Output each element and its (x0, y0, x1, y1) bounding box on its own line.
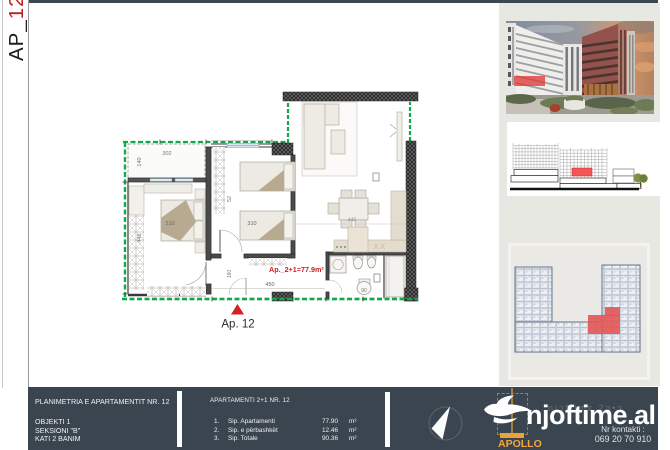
svg-text:310: 310 (247, 221, 256, 227)
svg-text:Ap._2+1=77.9m²: Ap._2+1=77.9m² (269, 265, 324, 274)
svg-text:52: 52 (227, 196, 233, 202)
svg-text:160: 160 (227, 270, 233, 279)
svg-text:440: 440 (348, 218, 357, 224)
svg-text:302: 302 (162, 151, 171, 157)
svg-text:210: 210 (165, 221, 174, 227)
svg-text:90: 90 (361, 288, 367, 294)
svg-text:450: 450 (265, 282, 274, 288)
svg-text:140: 140 (137, 157, 143, 166)
svg-text:Ap. 12: Ap. 12 (221, 319, 254, 331)
svg-text:445: 445 (137, 233, 143, 242)
